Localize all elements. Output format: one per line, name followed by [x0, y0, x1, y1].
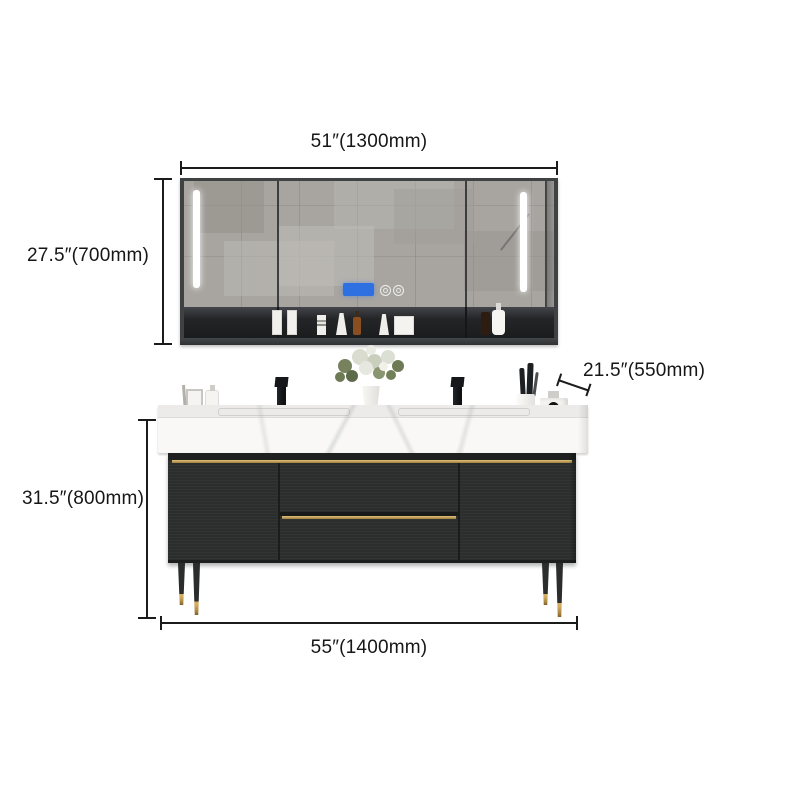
led-light-strip-left — [193, 190, 200, 288]
mirror-cabinet — [180, 178, 558, 345]
led-light-strip-right — [520, 192, 527, 292]
cabinet-top-rail — [168, 453, 576, 460]
mirror-width-dimension-line — [180, 167, 558, 169]
amber-dropper-bottle — [353, 317, 361, 335]
gold-trim-middle — [282, 516, 456, 519]
mirror-width-label: 51″(1300mm) — [180, 131, 558, 153]
pump-bottle — [492, 310, 505, 335]
cream-tube — [336, 313, 347, 335]
mirror-cabinet-base — [180, 338, 558, 345]
marble-veining — [158, 405, 588, 453]
flower-bouquet — [334, 345, 410, 391]
vanity-height-dimension-line — [146, 419, 148, 619]
mirror-edge-panel — [545, 181, 554, 307]
striped-jar — [317, 315, 326, 335]
product-dimension-diagram: 51″(1300mm) 27.5″(700mm) 21.5″(550mm) 31… — [0, 0, 800, 800]
shelf-divider — [465, 307, 467, 338]
vanity-height-label: 31.5″(800mm) — [22, 488, 144, 510]
cosmetic-card-box — [394, 316, 414, 335]
counter-depth-label: 21.5″(550mm) — [583, 360, 705, 382]
defog-touch-icon — [380, 285, 391, 296]
light-touch-icon — [393, 285, 404, 296]
vanity-width-label: 55″(1400mm) — [160, 637, 578, 659]
cream-tube — [379, 314, 389, 335]
mirror-door-seam — [465, 181, 467, 307]
mirror-height-dimension-line — [162, 178, 164, 345]
cosmetic-box — [287, 310, 297, 335]
amber-bottle — [481, 312, 490, 335]
leg-front-left — [191, 563, 202, 615]
gold-trim-top — [172, 460, 572, 463]
cabinet-door-seam-right — [458, 463, 460, 560]
mirror-open-shelf — [184, 307, 554, 338]
leg-front-right — [554, 563, 565, 617]
leg-back-left — [176, 563, 187, 605]
mirror-door-seam — [277, 181, 279, 307]
cabinet-bottom-edge — [168, 560, 576, 563]
mirror-height-label: 27.5″(700mm) — [22, 245, 154, 267]
makeup-brush — [519, 368, 526, 397]
counter-side-face — [578, 405, 588, 453]
cabinet-side-face — [569, 453, 576, 563]
vanity-width-dimension-line — [160, 622, 578, 624]
leg-back-right — [540, 563, 551, 605]
smart-display-screen — [343, 283, 374, 296]
cosmetic-box — [272, 310, 282, 335]
vanity-cabinet — [168, 453, 576, 563]
mirror-doors — [184, 181, 554, 307]
marble-countertop — [158, 405, 588, 453]
